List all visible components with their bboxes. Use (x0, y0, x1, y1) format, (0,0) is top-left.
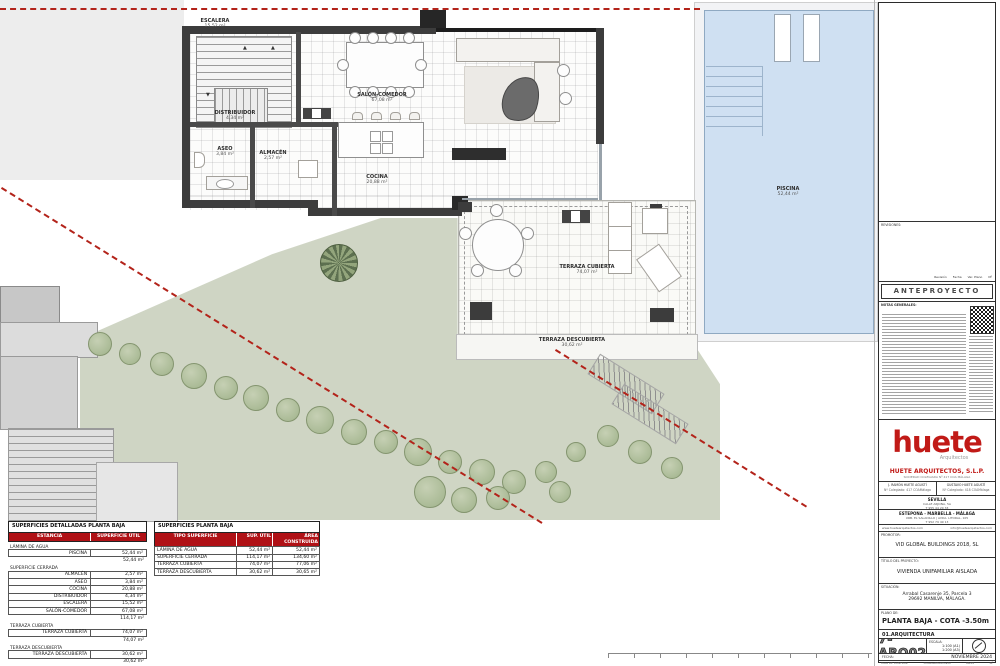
partition (190, 122, 338, 127)
partition (296, 32, 301, 124)
room-area: 2,57 m² (248, 156, 298, 162)
discipline-row: 01.ARQUITECTURA (879, 629, 995, 638)
room-area: 20,88 m² (346, 180, 408, 186)
chair (415, 59, 427, 71)
date-value: NOVIEMBRE 2024 (951, 655, 992, 660)
control-item: Original/Modificado (924, 661, 951, 665)
huete-logo: huete (892, 430, 982, 458)
sheet-fold-line (874, 0, 875, 666)
promoter-section: PROMOTOR: VID GLOBAL BUILDINGS 2018, SL (879, 531, 995, 557)
chair (385, 32, 397, 44)
room-area: 30,62 m² (512, 343, 632, 349)
table-cell: LÁMINA DE AGUA (155, 547, 237, 553)
boundary-line (0, 8, 700, 10)
drawing-sheet: ▲ ▲ ▼ (0, 0, 1000, 666)
tree (414, 476, 446, 508)
table-cell: 74,07 m² (237, 562, 273, 568)
wall (182, 200, 316, 208)
chair (471, 264, 484, 277)
kitchen-island (338, 122, 424, 158)
stool (390, 112, 401, 120)
pouf (557, 64, 570, 77)
table-cell: 77,06 m² (273, 562, 319, 568)
firm-name: HUETE ARQUITECTOS, S.L.P. (879, 468, 995, 475)
retaining-wall (0, 286, 60, 324)
title-block: REVISIONES: Revisión Fecha Ver. Plano Nº… (878, 2, 996, 663)
revisions-label: REVISIONES: (881, 223, 901, 227)
terrain-step (0, 356, 78, 430)
rev-col: Fecha (953, 275, 962, 279)
upper-terrain (0, 0, 184, 180)
promoter-label: PROMOTOR: (881, 533, 901, 537)
glazing (599, 144, 602, 200)
plan-name: PLANTA BAJA - COTA -3.50m (879, 617, 995, 625)
tree (306, 406, 334, 434)
stair-arrow-icon: ▲ (243, 45, 247, 51)
stool (371, 112, 382, 120)
date-label: FECHA: (882, 655, 894, 659)
stair-arrow-icon: ▼ (206, 92, 210, 98)
column-header: TIPO SUPERFICIE (155, 533, 237, 547)
tree (566, 442, 586, 462)
tree (119, 343, 141, 365)
graphic-scale-bar (608, 653, 872, 658)
side-table (642, 208, 668, 234)
window-band (436, 28, 602, 32)
table-subtotal-row: 114,17 m² (8, 615, 147, 621)
stair-arrow-icon: ▲ (271, 45, 275, 51)
room-area: 15,52 m² (190, 24, 240, 30)
north-arrow-icon (972, 639, 986, 653)
terrain-step (0, 322, 98, 358)
chair (367, 32, 379, 44)
sun-lounger (803, 14, 820, 62)
oven-column (298, 160, 318, 178)
rev-col: Ver. Plano (968, 275, 983, 279)
tree (628, 440, 652, 464)
room-area: 67,08 m² (346, 98, 418, 104)
tree (451, 487, 477, 513)
table-cell: 52,44 m² (237, 547, 273, 553)
partition (250, 122, 255, 208)
table-cell: 52,44 m² (273, 547, 319, 553)
phase-label: ANTEPROYECTO (881, 284, 993, 299)
table-cell: 114,17 m² (237, 555, 273, 561)
date-row: FECHA: NOVIEMBRE 2024 (879, 653, 995, 660)
hob (370, 131, 381, 142)
website: www.huetearquitectos.com (882, 526, 923, 530)
scale-value: 1:200 (A3) (927, 648, 962, 652)
room-label-piscina: PISCINA 52,44 m² (758, 186, 818, 198)
table-title: SUPERFICIES DETALLADAS PLANTA BAJA (8, 521, 147, 533)
sun-lounger (774, 14, 791, 62)
table-cell: 30,62 m² (237, 569, 273, 575)
table-row: ESCALERA15,52 m² (8, 600, 147, 608)
terrace-column (458, 202, 472, 212)
table-subtotal-row: 52,44 m² (8, 557, 147, 563)
chair (521, 227, 534, 240)
promoter-name: VID GLOBAL BUILDINGS 2018, SL (879, 542, 995, 548)
tree (597, 425, 619, 447)
room-area: 52,44 m² (758, 192, 818, 198)
table-subtotal-row: 30,62 m² (8, 659, 147, 665)
column-header: SUP. ÚTIL (237, 533, 273, 547)
room-label-terraza-cubierta: TERRAZA CUBIERTA 74,07 m² (545, 264, 629, 276)
terrain-step (96, 462, 178, 522)
table-row: ASEO3,84 m² (8, 578, 147, 586)
dining-table (346, 42, 424, 88)
project-title-section: TÍTULO DEL PROYECTO: VIVIENDA UNIFAMILIA… (879, 557, 995, 583)
architect-reg: Nº Colegiado: 418 COAMálaga (937, 488, 995, 493)
tree (549, 481, 571, 503)
discipline-label: 01.ARQUITECTURA (879, 630, 995, 638)
tree (661, 457, 683, 479)
room-label-almacen: ALMACÉN 2,57 m² (248, 150, 298, 162)
room-label-distribuidor: DISTRIBUIDOR 4,34 m² (204, 110, 266, 122)
room-label-cocina: COCINA 20,88 m² (346, 174, 408, 186)
level-marker (303, 108, 331, 119)
room-label-terraza-descubierta: TERRAZA DESCUBIERTA 30,62 m² (512, 337, 632, 349)
table-row: TERRAZA DESCUBIERTA30,62 m²30,65 m² (154, 568, 320, 576)
table-cell: TERRAZA CUBIERTA (155, 562, 237, 568)
room-label-aseo: ASEO 3,84 m² (204, 146, 246, 158)
stool (352, 112, 363, 120)
planter-divider (608, 226, 632, 227)
sink (382, 143, 393, 154)
logo-section: huete Arquitectos (879, 419, 995, 467)
sheet-code: 7-ARQ02 (879, 638, 926, 653)
tree (243, 385, 269, 411)
table-cell: SUPERFICIE CERRADA (155, 555, 237, 561)
plan-name-label: PLANO DE: (881, 611, 898, 615)
chimney (420, 10, 446, 28)
room-area: 3,84 m² (204, 152, 246, 158)
office-estepona: ESTEPONA - MARBELLA - MÁLAGA URB. EL SAL… (879, 509, 995, 524)
wall (596, 28, 604, 144)
table-header: TIPO SUPERFICIE SUP. ÚTIL ÁREA CONSTRUID… (154, 533, 320, 548)
tree (214, 376, 238, 400)
revisions-section: REVISIONES: (879, 221, 995, 281)
glazing (462, 198, 598, 200)
project-title: VIVIENDA UNIFAMILIAR AISLADA (879, 569, 995, 575)
table-cell: 134,60 m² (273, 555, 319, 561)
tree (181, 363, 207, 389)
room-area: 4,34 m² (204, 116, 266, 122)
table-row: LÁMINA DE AGUA52,44 m²52,44 m² (154, 546, 320, 554)
table-body: LÁMINA DE AGUAPISCINA52,44 m²52,44 m²SUP… (8, 542, 147, 665)
control-row: HOJA DE CONTROL: Original/Modificado 06/… (879, 660, 995, 664)
office-sevilla: SEVILLA CALLE ARJONA, 5A T 955 44 20 33 (879, 495, 995, 509)
email: info@huetearquitectos.com (950, 526, 992, 530)
column-header: ESTANCIA (9, 533, 91, 541)
room-label-salon: SALÓN-COMEDOR 67,08 m² (346, 92, 418, 104)
architect-reg: Nº Colegiado: 417 COAMálaga (879, 488, 936, 493)
rev-col: Revisión (934, 275, 947, 279)
firm-section: HUETE ARQUITECTOS, S.L.P. SOCIEDAD COLEG… (879, 467, 995, 481)
qr-code-icon (970, 306, 994, 334)
column-header: ÁREA CONSTRUIDA (273, 533, 319, 547)
sheet-code-row: 7-ARQ02 ESCALA: 1:100 (A1) 1:200 (A3) (879, 638, 995, 653)
wall (182, 26, 190, 208)
tv-unit (452, 148, 506, 160)
rev-col: Nº (988, 275, 992, 279)
chair (490, 204, 503, 217)
planter-divider (608, 250, 632, 251)
table-cell: TERRAZA DESCUBIERTA (155, 569, 237, 575)
terrace-column (470, 302, 492, 320)
level-marker (562, 210, 590, 223)
sink (370, 143, 381, 154)
chair (509, 264, 522, 277)
chair (403, 32, 415, 44)
detail-areas-table: SUPERFICIES DETALLADAS PLANTA BAJA ESTAN… (8, 521, 147, 665)
tree (150, 352, 174, 376)
table-header: ESTANCIA SUPERFICIE ÚTIL (8, 533, 147, 542)
column-header: SUPERFICIE ÚTIL (91, 533, 146, 541)
control-item: HOJA DE CONTROL: (881, 661, 908, 665)
table-cell: 30,65 m² (273, 569, 319, 575)
pool-steps (706, 66, 763, 136)
web-row: www.huetearquitectos.com info@huetearqui… (879, 524, 995, 531)
tree (535, 461, 557, 483)
table-row: COCINA20,88 m² (8, 585, 147, 593)
sofa (456, 38, 560, 62)
tree (276, 398, 300, 422)
table-row: SUPERFICIE CERRADA114,17 m²134,60 m² (154, 554, 320, 562)
partition (332, 122, 337, 216)
table-row: TERRAZA CUBIERTA74,07 m²77,06 m² (154, 561, 320, 569)
basin (216, 179, 234, 189)
architects-row: J. RAMÓN HUETE AGUSTÍ Nº Colegiado: 417 … (879, 481, 995, 495)
plan-name-section: PLANO DE: PLANTA BAJA - COTA -3.50m (879, 609, 995, 629)
chair (349, 32, 361, 44)
tree (341, 419, 367, 445)
firm-subtitle: SOCIEDAD COLEGIADA Nº 417 COA MÁLAGA (879, 475, 995, 479)
table-body: LÁMINA DE AGUA52,44 m²52,44 m²SUPERFICIE… (154, 546, 320, 576)
table-row: TERRAZA DESCUBIERTA30,62 m² (8, 650, 147, 658)
table-row: SALÓN-COMEDOR67,08 m² (8, 607, 147, 615)
hob (382, 131, 393, 142)
notes-section: NOTAS GENERALES: (879, 301, 995, 419)
notes-text-lines (882, 314, 966, 414)
room-area: 74,07 m² (545, 270, 629, 276)
table-row: ALMACÉN2,57 m² (8, 571, 147, 579)
table-subtotal-row: 74,07 m² (8, 637, 147, 643)
chair (459, 227, 472, 240)
control-item: Nº (990, 661, 993, 665)
location-line2: 29692 MANILVA, MÁLAGA. (879, 597, 995, 602)
table-row: PISCINA52,44 m² (8, 549, 147, 557)
chair (337, 59, 349, 71)
tree (374, 430, 398, 454)
pouf (559, 92, 572, 105)
room-label-escalera: ESCALERA 15,52 m² (190, 18, 240, 30)
palm-tree (320, 244, 358, 282)
table-row: DISTRIBUIDOR4,34 m² (8, 593, 147, 601)
stool (409, 112, 420, 120)
summary-areas-table: SUPERFICIES PLANTA BAJA TIPO SUPERFICIE … (154, 521, 320, 576)
location-section: SITUACIÓN: Arrabal Casarenje 35, Parcela… (879, 583, 995, 609)
project-title-label: TÍTULO DEL PROYECTO: (881, 559, 919, 563)
location-label: SITUACIÓN: (881, 585, 900, 589)
tree (88, 332, 112, 356)
revisions-header-row: Revisión Fecha Ver. Plano Nº (879, 273, 995, 281)
notes-label: NOTAS GENERALES: (881, 303, 917, 307)
table-title: SUPERFICIES PLANTA BAJA (154, 521, 320, 533)
logo-h-mark: huete (892, 425, 982, 459)
scale-label: ESCALA: (929, 640, 943, 644)
notes-text-lines (969, 336, 993, 414)
phase-band: ANTEPROYECTO (879, 281, 995, 301)
terrace-column (650, 308, 674, 322)
table-row: TERRAZA CUBIERTA74,07 m² (8, 629, 147, 637)
control-item: 06/05 (966, 661, 974, 665)
